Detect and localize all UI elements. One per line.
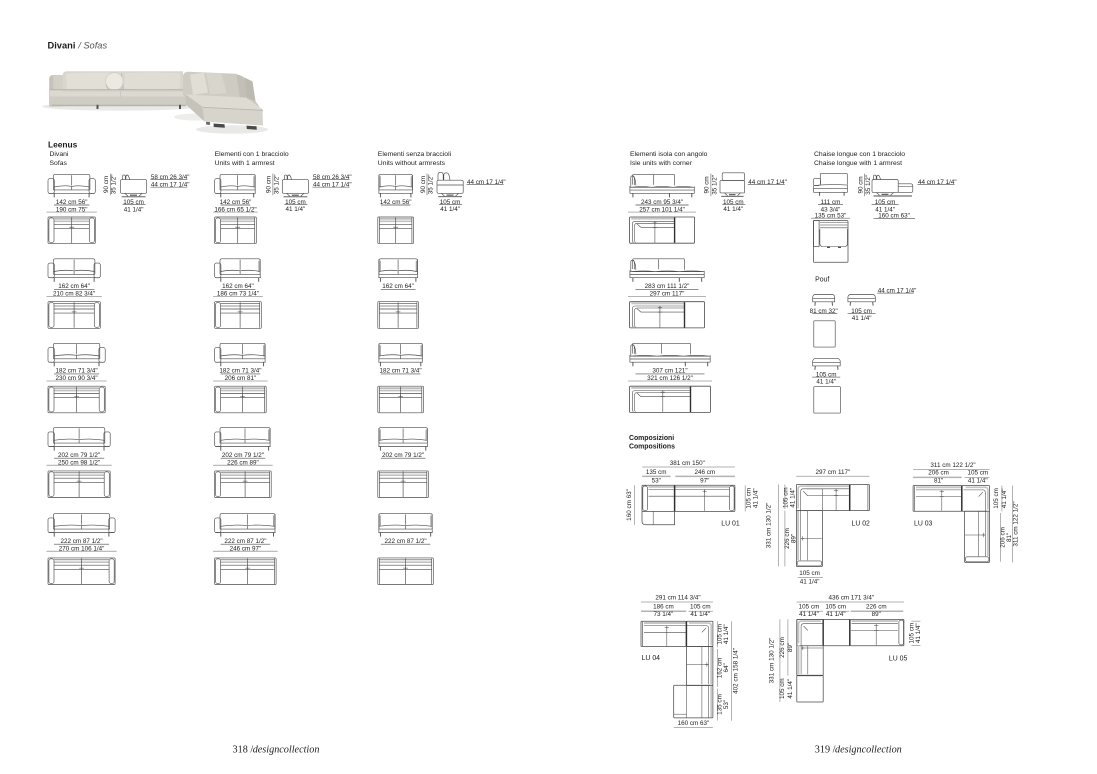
svg-text:41 1/4": 41 1/4" bbox=[915, 623, 922, 643]
svg-text:LU 04: LU 04 bbox=[642, 655, 661, 662]
svg-text:41 1/4": 41 1/4" bbox=[723, 206, 743, 213]
svg-text:41 1/4": 41 1/4" bbox=[124, 206, 144, 213]
svg-text:105 cm: 105 cm bbox=[967, 470, 988, 477]
svg-text:/ Sofas: / Sofas bbox=[77, 40, 107, 50]
svg-text:160 cm 63": 160 cm 63" bbox=[678, 720, 710, 727]
svg-text:Pouf: Pouf bbox=[815, 277, 829, 284]
svg-text:89": 89" bbox=[787, 643, 794, 652]
svg-text:53": 53" bbox=[723, 700, 730, 709]
svg-text:206 cm: 206 cm bbox=[928, 470, 949, 477]
svg-text:436 cm 171 3/4": 436 cm 171 3/4" bbox=[828, 595, 874, 602]
svg-text:90 cm: 90 cm bbox=[857, 176, 864, 193]
svg-text:381 cm 150": 381 cm 150" bbox=[670, 460, 705, 467]
svg-text:35 1/2": 35 1/2" bbox=[273, 175, 280, 195]
svg-text:Units without armrests: Units without armrests bbox=[378, 160, 446, 167]
svg-text:402 cm 158 1/4": 402 cm 158 1/4" bbox=[732, 648, 739, 694]
svg-text:Elementi senza braccioli: Elementi senza braccioli bbox=[378, 151, 452, 158]
svg-text:41 1/4": 41 1/4" bbox=[852, 315, 872, 322]
svg-text:319 /: 319 / bbox=[815, 744, 836, 755]
svg-text:Chaise longue con 1 bracciolo: Chaise longue con 1 bracciolo bbox=[814, 151, 905, 158]
svg-text:311 cm 122 1/2": 311 cm 122 1/2" bbox=[1012, 501, 1019, 546]
svg-text:designcollection: designcollection bbox=[835, 744, 902, 755]
svg-text:311 cm 122 1/2": 311 cm 122 1/2" bbox=[930, 462, 975, 469]
svg-text:Divani: Divani bbox=[50, 151, 69, 158]
svg-text:291 cm 114 3/4": 291 cm 114 3/4" bbox=[655, 595, 700, 602]
svg-text:81": 81" bbox=[934, 478, 943, 485]
svg-text:35 1/2": 35 1/2" bbox=[865, 175, 872, 195]
svg-text:Isle units with corner: Isle units with corner bbox=[630, 160, 693, 167]
svg-text:LU 03: LU 03 bbox=[914, 521, 933, 528]
svg-text:160 cm 63": 160 cm 63" bbox=[626, 489, 633, 521]
svg-text:90 cm: 90 cm bbox=[420, 176, 427, 193]
svg-text:Leenus: Leenus bbox=[48, 140, 78, 150]
svg-text:41 1/4": 41 1/4" bbox=[1001, 489, 1008, 509]
svg-text:LU 05: LU 05 bbox=[889, 655, 908, 662]
svg-text:105 cm: 105 cm bbox=[779, 678, 786, 699]
svg-text:226 cm: 226 cm bbox=[779, 637, 786, 658]
svg-text:Sofas: Sofas bbox=[50, 160, 68, 167]
svg-text:105 cm: 105 cm bbox=[825, 604, 846, 611]
svg-text:53": 53" bbox=[652, 477, 661, 484]
svg-text:44 cm 17 1/4": 44 cm 17 1/4" bbox=[313, 182, 352, 189]
svg-text:331 cm 130 1/2": 331 cm 130 1/2" bbox=[766, 503, 773, 549]
svg-text:44 cm 17 1/4": 44 cm 17 1/4" bbox=[151, 182, 190, 189]
svg-text:105 cm: 105 cm bbox=[993, 488, 1000, 509]
svg-text:LU 01: LU 01 bbox=[721, 521, 740, 528]
svg-text:90 cm: 90 cm bbox=[103, 176, 110, 193]
svg-text:97": 97" bbox=[700, 477, 709, 484]
svg-text:Divani: Divani bbox=[48, 40, 76, 50]
svg-text:Elementi con 1 bracciolo: Elementi con 1 bracciolo bbox=[215, 151, 289, 158]
svg-text:297 cm 117": 297 cm 117" bbox=[816, 469, 851, 476]
svg-text:Composizioni: Composizioni bbox=[629, 435, 674, 442]
svg-text:LU 02: LU 02 bbox=[852, 521, 871, 528]
svg-text:41 1/4": 41 1/4" bbox=[789, 488, 796, 508]
svg-text:105 cm: 105 cm bbox=[690, 604, 711, 611]
svg-text:246 cm: 246 cm bbox=[694, 469, 715, 476]
svg-text:41 1/4": 41 1/4" bbox=[723, 624, 730, 644]
svg-text:226 cm: 226 cm bbox=[866, 604, 887, 611]
svg-text:Compositions: Compositions bbox=[629, 443, 675, 450]
svg-text:35 1/2": 35 1/2" bbox=[111, 175, 118, 195]
svg-text:64": 64" bbox=[723, 663, 730, 672]
svg-text:331 cm 130 1/2": 331 cm 130 1/2" bbox=[768, 638, 775, 684]
svg-text:41 1/4": 41 1/4" bbox=[800, 578, 820, 585]
svg-text:Units with 1 armrest: Units with 1 armrest bbox=[215, 160, 275, 167]
svg-text:41 1/4": 41 1/4" bbox=[690, 611, 710, 618]
svg-text:73 1/4": 73 1/4" bbox=[654, 611, 674, 618]
svg-text:Elementi isola con angolo: Elementi isola con angolo bbox=[630, 151, 708, 158]
svg-text:35 1/2": 35 1/2" bbox=[711, 175, 718, 195]
svg-text:105 cm: 105 cm bbox=[799, 604, 820, 611]
svg-text:35 1/2": 35 1/2" bbox=[427, 175, 434, 195]
svg-text:Chaise longue with 1 armrest: Chaise longue with 1 armrest bbox=[814, 160, 902, 167]
svg-text:41 1/4": 41 1/4" bbox=[826, 611, 846, 618]
svg-text:41 1/4": 41 1/4" bbox=[440, 206, 460, 213]
svg-text:41 1/4": 41 1/4" bbox=[799, 611, 819, 618]
svg-text:186 cm: 186 cm bbox=[653, 604, 674, 611]
svg-text:41 1/4": 41 1/4" bbox=[752, 488, 759, 508]
svg-text:90 cm: 90 cm bbox=[266, 176, 273, 193]
svg-text:89": 89" bbox=[872, 611, 881, 618]
svg-text:41 1/4": 41 1/4" bbox=[787, 679, 794, 699]
svg-text:41 1/4": 41 1/4" bbox=[968, 478, 988, 485]
svg-text:41 1/4": 41 1/4" bbox=[286, 206, 306, 213]
svg-text:135 cm: 135 cm bbox=[646, 469, 667, 476]
svg-text:41 1/4": 41 1/4" bbox=[816, 379, 836, 386]
svg-text:90 cm: 90 cm bbox=[704, 176, 711, 193]
svg-text:318 /: 318 / bbox=[233, 744, 254, 755]
svg-text:designcollection: designcollection bbox=[253, 744, 320, 755]
svg-text:105 cm: 105 cm bbox=[799, 570, 820, 577]
